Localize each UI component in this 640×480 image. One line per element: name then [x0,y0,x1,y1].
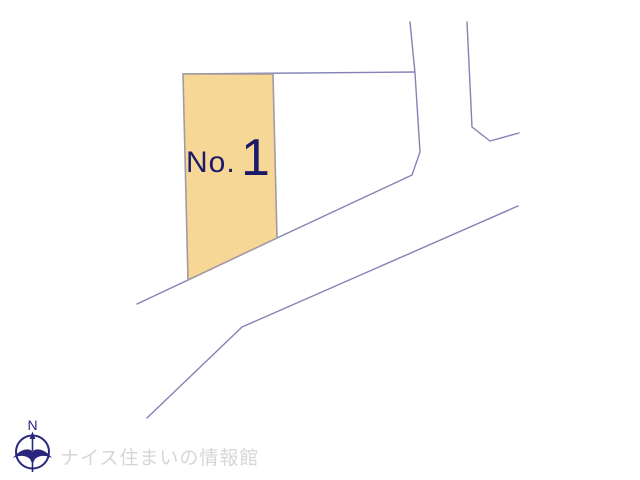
compass-rose: N [11,416,57,476]
compass-north-label: N [27,417,37,433]
brand-watermark: ナイス住まいの情報館 [60,443,259,470]
parcel-geometry [137,22,519,418]
east-boundary-line [467,22,519,141]
west-road-edge [137,22,420,304]
parcel-map: No. 1 [0,0,640,480]
site-plan-canvas: No. 1 N ナイス住まいの情報館 [0,0,640,480]
parcel-label-prefix: No. [186,146,236,179]
parcel-label-number: 1 [241,129,270,187]
